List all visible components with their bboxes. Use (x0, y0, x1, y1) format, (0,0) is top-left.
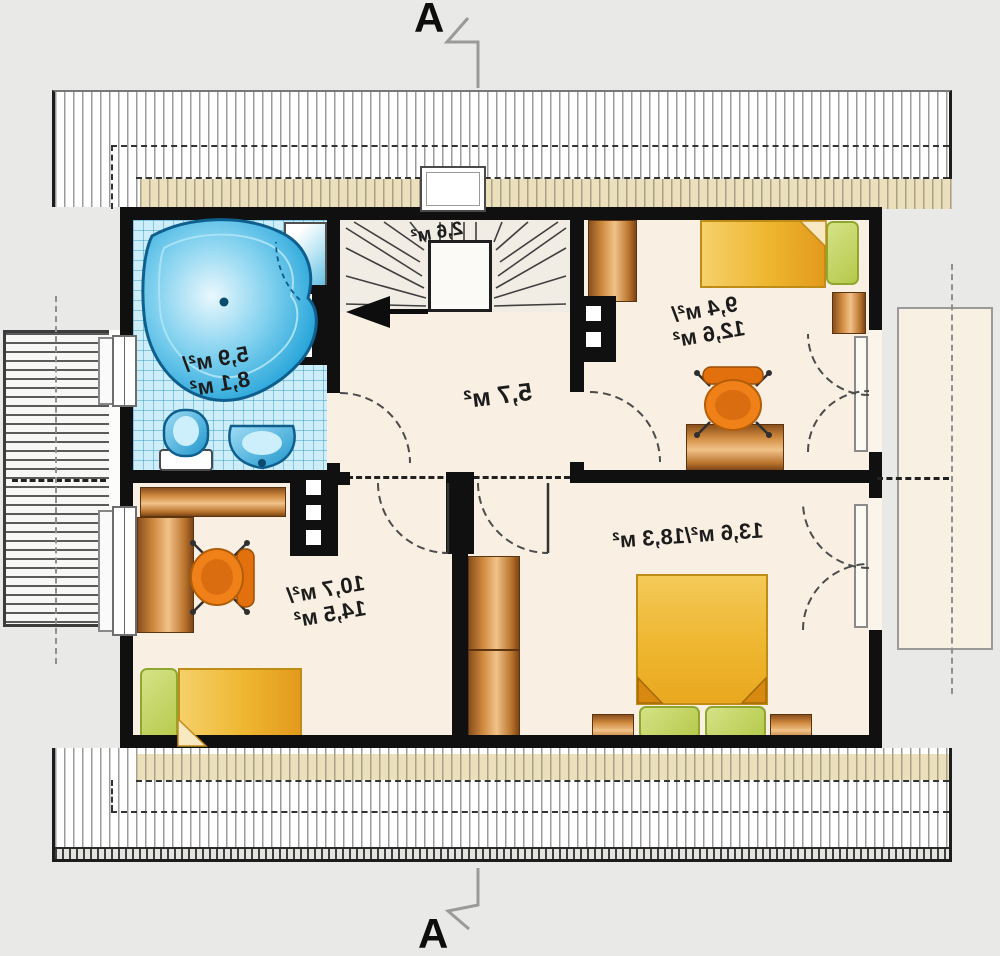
roof-hatch-top (52, 90, 952, 207)
section-marker-bottom: A (418, 910, 448, 956)
roof-ridge-ticks (55, 847, 949, 859)
eaves-strip-top (140, 179, 952, 209)
chimney-flue-icon (290, 470, 338, 556)
shower-icon (284, 222, 327, 288)
window-icon (112, 506, 137, 636)
axis-dashed-line-left (55, 296, 57, 664)
roof-window-icon (420, 166, 486, 212)
wall-exterior-left (120, 407, 133, 506)
double-bed-icon (636, 574, 768, 705)
balcony-door-leaf (854, 504, 868, 628)
chimney-flue-icon (570, 296, 616, 362)
wall-exterior-bottom (120, 735, 882, 748)
section-line-bottom (448, 868, 478, 929)
pillow-icon (826, 221, 859, 285)
chimney-flue-icon (283, 285, 329, 365)
floor-plan-canvas: A A (0, 0, 1000, 956)
wardrobe-icon (140, 487, 286, 517)
roof-edge-dashed-line (111, 811, 949, 813)
desk-icon (137, 517, 194, 633)
balcony-door-opening (869, 498, 882, 630)
wall-cap (338, 472, 350, 485)
wall-exterior-top (120, 207, 882, 220)
roof-edge-dashed-line (136, 780, 949, 782)
section-line-top (447, 18, 478, 88)
roof-hatch-bottom (52, 748, 952, 862)
wall-stub (446, 472, 474, 554)
axis-dashed-line-right (951, 264, 953, 694)
wall-exterior-right (869, 630, 882, 748)
roof-edge-dashed-line (111, 780, 113, 811)
wall-exterior-left (120, 636, 133, 748)
deck-dashed-line (877, 477, 949, 480)
single-bed-icon (700, 220, 826, 288)
wall-mid-right (570, 470, 882, 483)
wall-exterior-left (120, 207, 133, 335)
roof-edge-dashed-line (111, 145, 949, 147)
balcony-door-leaf (854, 336, 868, 452)
roof-edge-dashed-line (111, 145, 113, 209)
stair-landing (428, 240, 492, 312)
wall-exterior-right (869, 207, 882, 330)
eaves-strip-bottom (136, 754, 949, 780)
wardrobe-icon (468, 556, 520, 746)
balcony-door-opening (869, 330, 882, 452)
deck-dashed-line (12, 479, 106, 482)
wardrobe-divider (469, 649, 519, 651)
wardrobe-icon (588, 220, 637, 302)
section-marker-top: A (414, 0, 444, 42)
desk-icon (686, 424, 784, 471)
window-icon (112, 335, 137, 407)
nightstand-icon (832, 292, 866, 334)
roof-edge-dashed-line (136, 177, 949, 179)
